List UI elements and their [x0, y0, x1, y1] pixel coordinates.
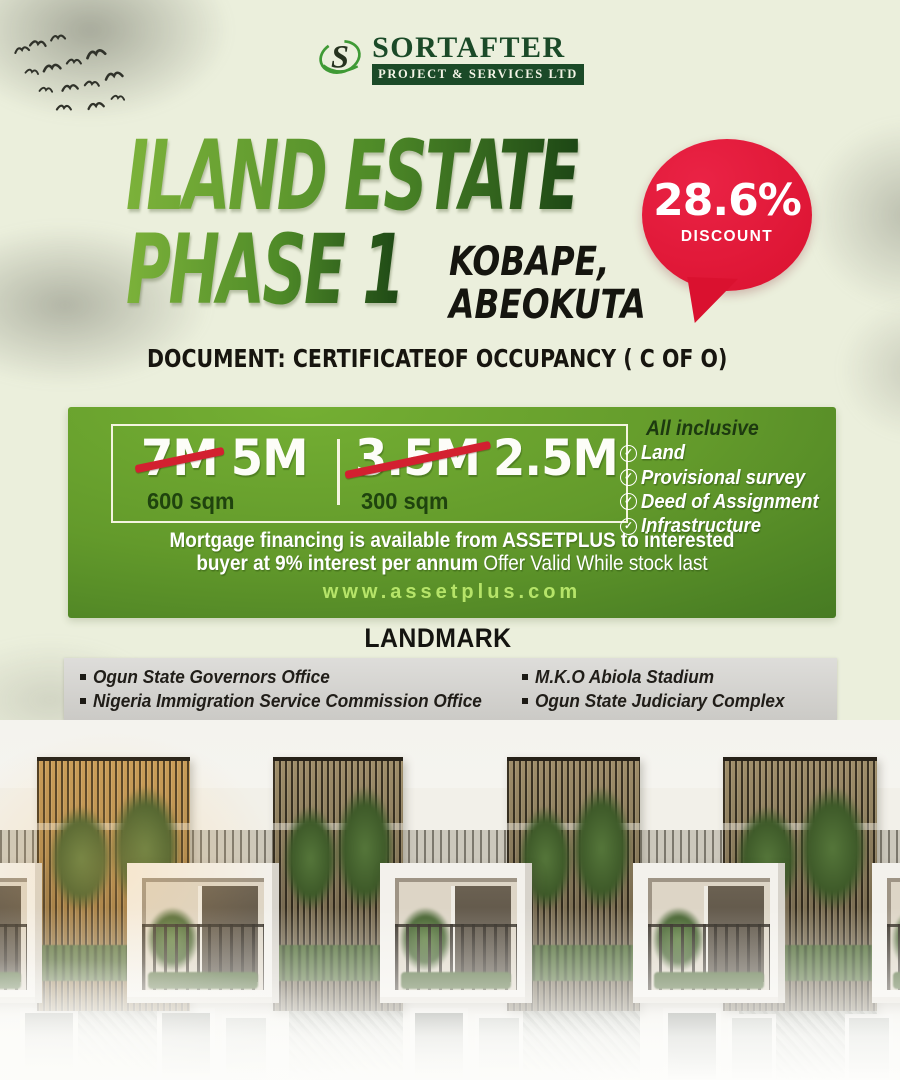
check-circle-icon: ✓	[620, 445, 637, 462]
offer-panel: 7M 5M 600 sqm 3.5M 2.5M 300 sqm All incl…	[68, 407, 836, 618]
plot-size: 300 sqm	[361, 488, 448, 515]
inclusive-item-label: Provisional survey	[641, 466, 805, 490]
price-divider	[337, 439, 340, 505]
new-price: 2.5M	[493, 430, 618, 486]
inclusive-item: ✓Provisional survey	[620, 465, 836, 489]
square-bullet-icon	[522, 698, 528, 704]
landmark-heading: LANDMARK	[35, 623, 841, 654]
estate-render-image	[0, 720, 900, 1080]
new-price: 5M	[231, 430, 308, 486]
estate-location: KOBAPE, ABEOKUTA	[449, 241, 646, 327]
landmark-column-left: Ogun State Governors OfficeNigeria Immig…	[80, 666, 511, 712]
landmark-item: M.K.O Abiola Stadium	[522, 666, 803, 688]
flyer-page: { "logo": { "brand": "SORTAFTER", "tagli…	[0, 0, 900, 1080]
mortgage-line2-bold: buyer at 9% interest per annum	[196, 551, 478, 575]
price-box: 7M 5M 600 sqm 3.5M 2.5M 300 sqm	[111, 424, 628, 523]
location-line1: KOBAPE,	[449, 241, 646, 284]
inclusive-item: ✓Deed of Assignment	[620, 490, 836, 514]
old-price: 7M	[141, 430, 218, 486]
plot-size: 600 sqm	[147, 488, 234, 515]
inclusive-title: All inclusive	[646, 417, 821, 441]
old-price: 3.5M	[355, 430, 480, 486]
discount-label: DISCOUNT	[642, 228, 812, 246]
square-bullet-icon	[80, 698, 86, 704]
square-bullet-icon	[522, 674, 528, 680]
svg-text:S: S	[331, 38, 349, 74]
plot-price-600sqm: 7M 5M	[141, 430, 308, 486]
plot-price-300sqm: 3.5M 2.5M	[355, 430, 618, 486]
inclusive-item-label: Deed of Assignment	[641, 490, 819, 514]
mortgage-line1: Mortgage financing is available from ASS…	[114, 529, 790, 552]
mortgage-line2-regular: Offer Valid While stock last	[483, 551, 707, 575]
inclusive-items: ✓Land✓Provisional survey✓Deed of Assignm…	[620, 441, 836, 539]
location-line2: ABEOKUTA	[449, 284, 646, 327]
mortgage-note: Mortgage financing is available from ASS…	[68, 529, 836, 575]
inclusive-item-label: Land	[641, 441, 685, 465]
check-circle-icon: ✓	[620, 493, 637, 510]
landmark-item: Ogun State Governors Office	[80, 666, 511, 688]
discount-value: 28.6%	[642, 175, 812, 226]
cloud-decoration	[840, 300, 900, 440]
inclusive-item: ✓Land	[620, 441, 836, 465]
discount-badge: 28.6% DISCOUNT	[642, 139, 812, 291]
landmark-item: Ogun State Judiciary Complex	[522, 690, 803, 712]
cloud-decoration	[810, 120, 900, 310]
logo-brand: SORTAFTER	[372, 33, 584, 63]
landmark-column-right: M.K.O Abiola StadiumOgun State Judiciary…	[522, 666, 803, 712]
mortgage-line2: buyer at 9% interest per annum Offer Val…	[114, 552, 790, 575]
website-url: www.assetplus.com	[68, 581, 836, 604]
inclusive-list: All inclusive ✓Land✓Provisional survey✓D…	[620, 417, 836, 539]
landmark-item-label: M.K.O Abiola Stadium	[535, 666, 714, 688]
estate-title-line2: PHASE 1	[126, 224, 402, 316]
square-bullet-icon	[80, 674, 86, 680]
sortafter-globe-icon: S	[316, 33, 364, 83]
landmark-bar: Ogun State Governors OfficeNigeria Immig…	[64, 658, 837, 720]
landmark-item-label: Ogun State Judiciary Complex	[535, 690, 785, 712]
bottom-fade	[0, 720, 900, 1080]
landmark-item-label: Ogun State Governors Office	[93, 666, 330, 688]
logo: S SORTAFTER PROJECT & SERVICES LTD	[0, 33, 900, 85]
logo-tagline: PROJECT & SERVICES LTD	[372, 64, 584, 85]
landmark-item: Nigeria Immigration Service Commission O…	[80, 690, 511, 712]
estate-title-line1: ILAND ESTATE	[126, 130, 578, 222]
check-circle-icon: ✓	[620, 469, 637, 486]
landmark-item-label: Nigeria Immigration Service Commission O…	[93, 690, 482, 712]
document-type-line: DOCUMENT: CERTIFICATEOF OCCUPANCY ( C OF…	[147, 344, 727, 373]
logo-text: SORTAFTER PROJECT & SERVICES LTD	[372, 33, 584, 85]
